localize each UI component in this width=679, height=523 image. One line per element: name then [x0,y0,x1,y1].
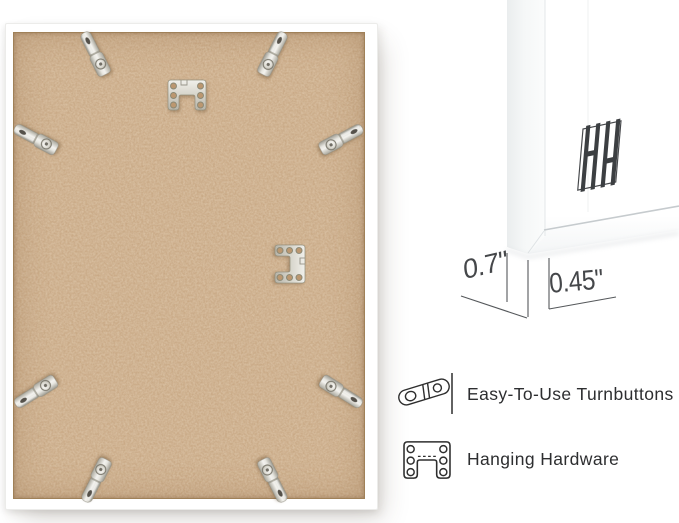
turnbutton [12,374,59,411]
turnbutton [78,29,112,77]
turnbutton [12,122,60,156]
turnbutton-icon [397,373,452,414]
feature-hanging-hardware-label: Hanging Hardware [467,449,619,470]
feature-turnbuttons-label: Easy-To-Use Turnbuttons [467,384,674,405]
turnbutton [256,29,290,77]
turnbutton [256,456,290,504]
frame-front-face [528,0,679,254]
hanging-hardware [275,245,305,283]
hanging-hardware-icon [404,442,450,478]
overlay-art [0,0,679,523]
dimension-face-width-label: 0.45" [548,263,604,300]
hanging-hardware [168,80,206,110]
feature-icons [397,373,452,478]
board-hardware [12,29,366,504]
turnbutton [79,456,113,504]
frame-side-face [507,0,545,254]
turnbutton [317,122,365,156]
turnbutton [318,374,365,411]
product-image: 0.7" 0.45" Easy-To-Use Turnbuttons Hangi… [0,0,679,523]
